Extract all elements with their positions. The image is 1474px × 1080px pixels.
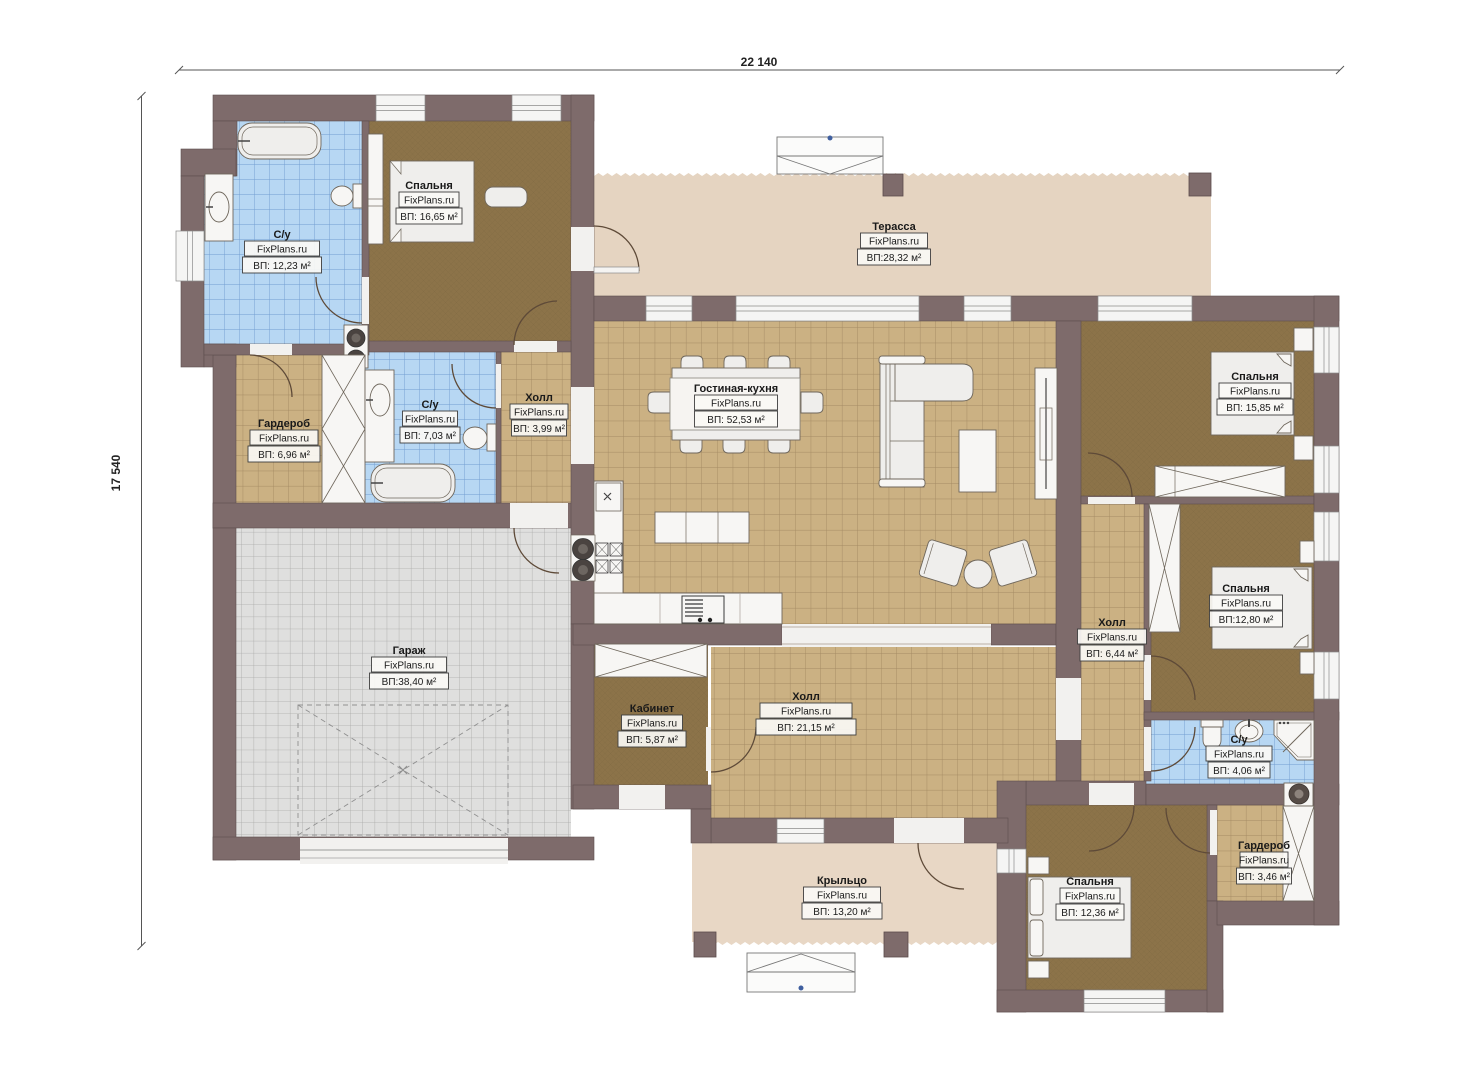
- svg-text:Кабинет: Кабинет: [630, 703, 675, 715]
- svg-text:22 140: 22 140: [741, 55, 778, 69]
- svg-text:FixPlans.ru: FixPlans.ru: [259, 434, 309, 445]
- svg-text:Крыльцо: Крыльцо: [817, 875, 867, 887]
- svg-text:Холл: Холл: [792, 691, 820, 703]
- svg-text:ВП: 6,44 м²: ВП: 6,44 м²: [1086, 649, 1139, 660]
- svg-text:Холл: Холл: [525, 392, 553, 404]
- svg-text:FixPlans.ru: FixPlans.ru: [405, 415, 455, 426]
- svg-text:FixPlans.ru: FixPlans.ru: [817, 891, 867, 902]
- svg-text:FixPlans.ru: FixPlans.ru: [404, 196, 454, 207]
- svg-text:С/у: С/у: [273, 229, 291, 241]
- svg-text:Спальня: Спальня: [1231, 371, 1279, 383]
- svg-text:ВП: 3,46 м²: ВП: 3,46 м²: [1238, 872, 1291, 883]
- svg-text:Гардероб: Гардероб: [258, 418, 310, 430]
- svg-text:Спальня: Спальня: [1222, 583, 1270, 595]
- svg-text:FixPlans.ru: FixPlans.ru: [1221, 599, 1271, 610]
- svg-text:17 540: 17 540: [109, 454, 123, 491]
- svg-text:ВП: 3,99 м²: ВП: 3,99 м²: [513, 424, 566, 435]
- svg-text:FixPlans.ru: FixPlans.ru: [711, 399, 761, 410]
- svg-text:С/у: С/у: [421, 399, 439, 411]
- svg-text:FixPlans.ru: FixPlans.ru: [781, 707, 831, 718]
- svg-text:ВП: 12,36 м²: ВП: 12,36 м²: [1061, 908, 1119, 919]
- svg-text:FixPlans.ru: FixPlans.ru: [1230, 387, 1280, 398]
- svg-text:Гардероб: Гардероб: [1238, 840, 1290, 852]
- svg-text:Спальня: Спальня: [405, 180, 453, 192]
- svg-text:FixPlans.ru: FixPlans.ru: [869, 237, 919, 248]
- svg-text:ВП:28,32 м²: ВП:28,32 м²: [867, 253, 922, 264]
- svg-text:ВП: 6,96 м²: ВП: 6,96 м²: [258, 450, 311, 461]
- svg-text:ВП: 21,15 м²: ВП: 21,15 м²: [777, 723, 835, 734]
- svg-text:ВП: 12,23 м²: ВП: 12,23 м²: [253, 261, 311, 272]
- svg-text:ВП: 52,53 м²: ВП: 52,53 м²: [707, 415, 765, 426]
- svg-text:ВП: 4,06 м²: ВП: 4,06 м²: [1213, 766, 1266, 777]
- svg-text:FixPlans.ru: FixPlans.ru: [384, 661, 434, 672]
- svg-text:ВП:38,40 м²: ВП:38,40 м²: [382, 677, 437, 688]
- svg-text:С/у: С/у: [1230, 734, 1248, 746]
- svg-text:FixPlans.ru: FixPlans.ru: [257, 245, 307, 256]
- svg-text:Терасса: Терасса: [872, 221, 916, 233]
- svg-text:FixPlans.ru: FixPlans.ru: [1087, 633, 1137, 644]
- svg-text:Холл: Холл: [1098, 617, 1126, 629]
- svg-text:ВП: 13,20 м²: ВП: 13,20 м²: [813, 907, 871, 918]
- svg-text:FixPlans.ru: FixPlans.ru: [1065, 892, 1115, 903]
- svg-text:ВП:12,80 м²: ВП:12,80 м²: [1219, 615, 1274, 626]
- svg-text:FixPlans.ru: FixPlans.ru: [1239, 856, 1289, 867]
- svg-text:Спальня: Спальня: [1066, 876, 1114, 888]
- svg-text:ВП: 16,65 м²: ВП: 16,65 м²: [400, 212, 458, 223]
- svg-text:Гостиная-кухня: Гостиная-кухня: [694, 383, 778, 395]
- svg-text:ВП: 15,85 м²: ВП: 15,85 м²: [1226, 403, 1284, 414]
- svg-text:FixPlans.ru: FixPlans.ru: [514, 408, 564, 419]
- svg-text:Гараж: Гараж: [393, 645, 426, 657]
- svg-text:ВП: 5,87 м²: ВП: 5,87 м²: [626, 735, 679, 746]
- svg-text:FixPlans.ru: FixPlans.ru: [627, 719, 677, 730]
- svg-text:FixPlans.ru: FixPlans.ru: [1214, 750, 1264, 761]
- svg-text:ВП: 7,03 м²: ВП: 7,03 м²: [404, 431, 457, 442]
